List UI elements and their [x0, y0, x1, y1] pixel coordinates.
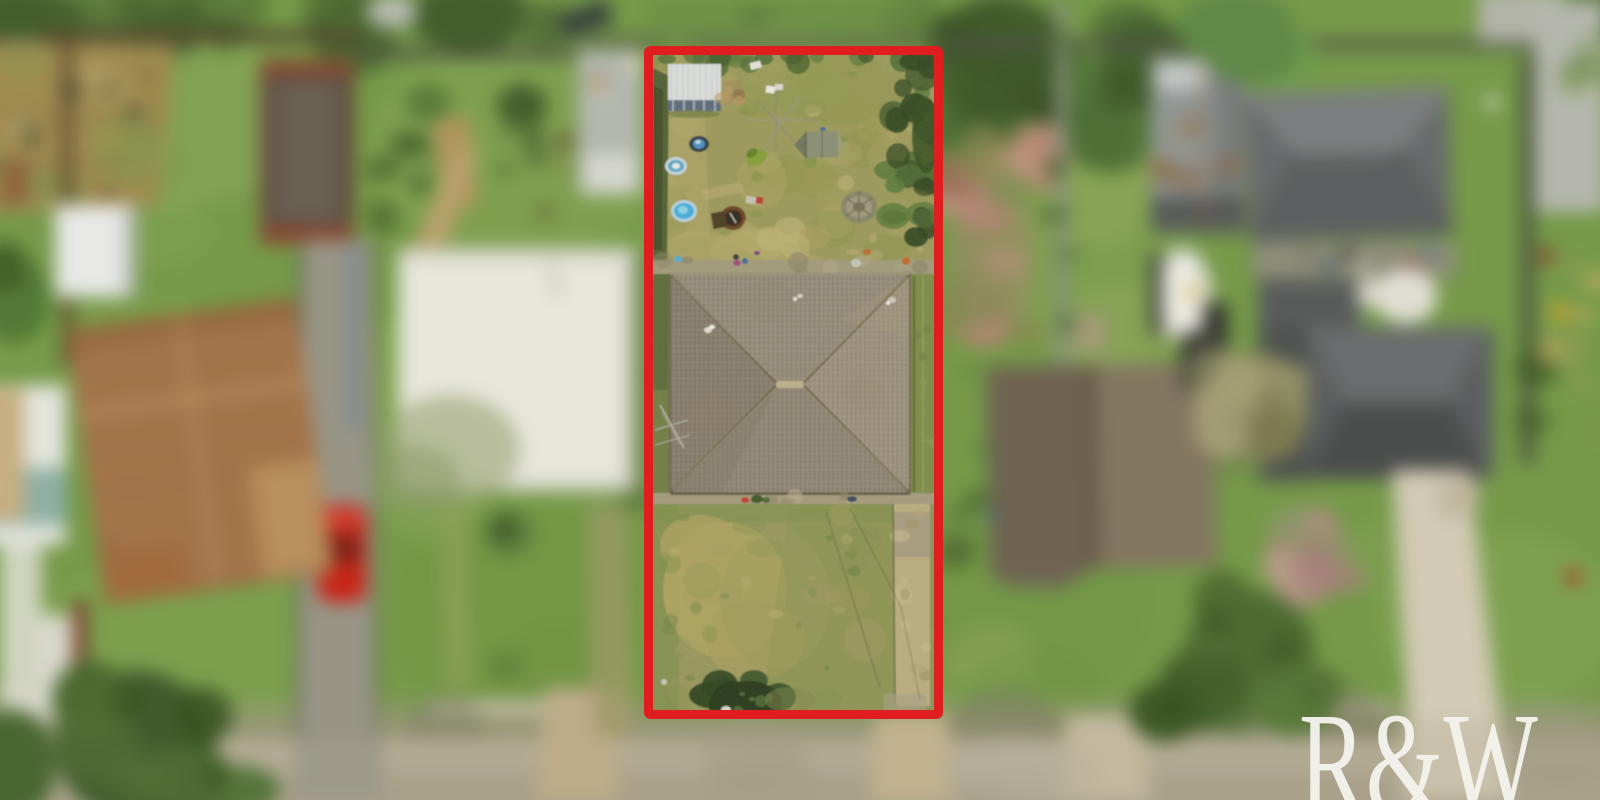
svg-text:R&W: R&W: [1299, 683, 1538, 800]
